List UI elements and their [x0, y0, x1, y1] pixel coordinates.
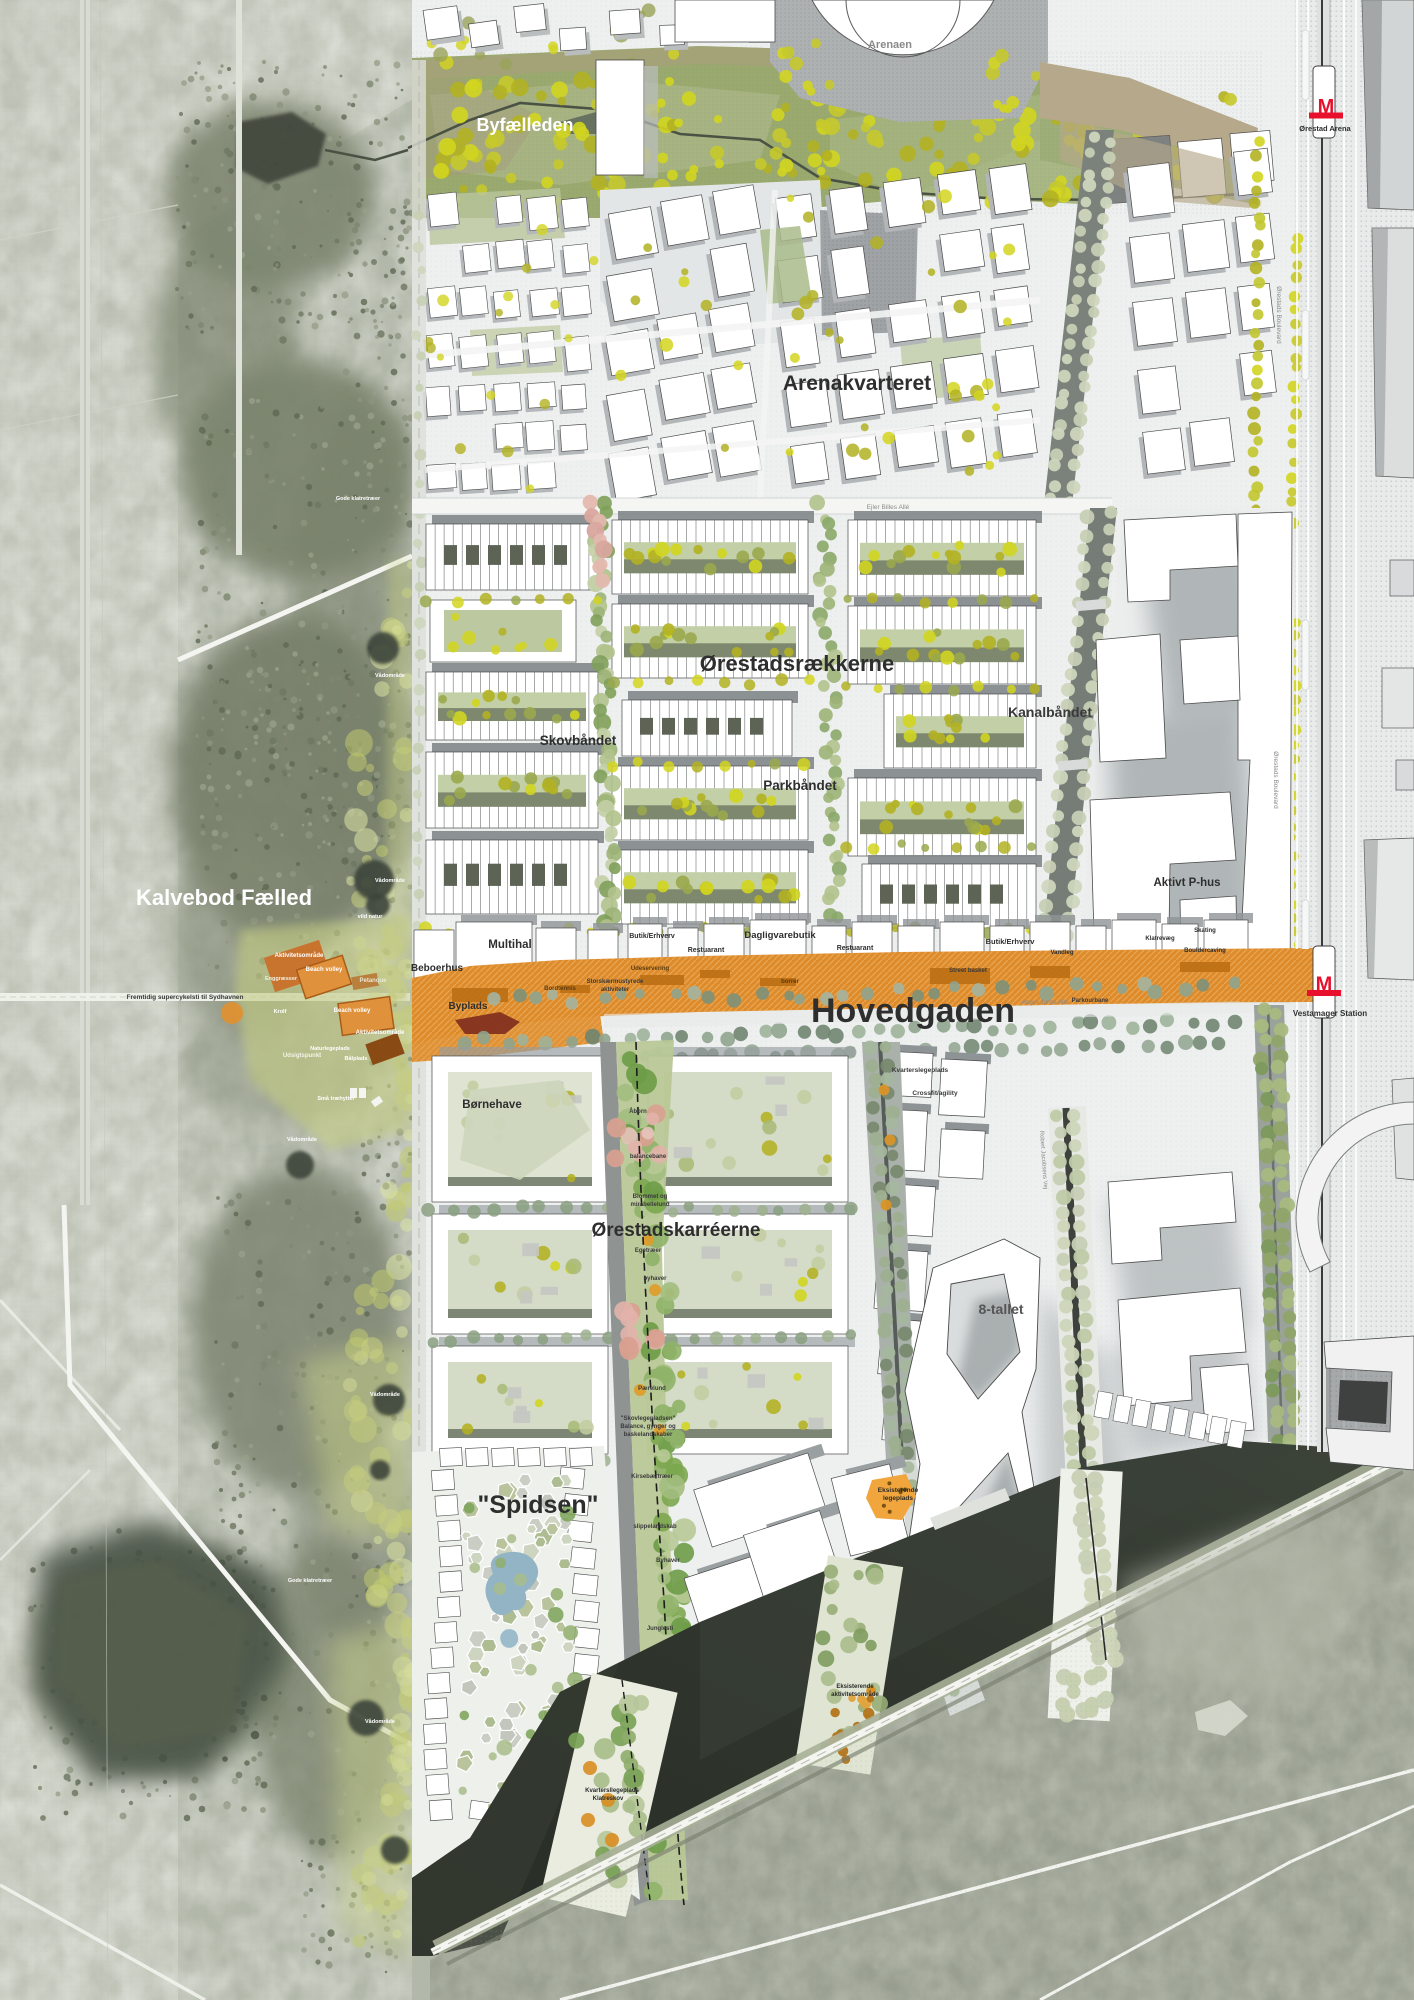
svg-text:Vestamager Station: Vestamager Station [1293, 1009, 1367, 1018]
svg-text:Beach volley: Beach volley [334, 1008, 371, 1014]
svg-text:Udeservering: Udeservering [631, 966, 670, 972]
svg-text:Vådområde: Vådområde [375, 877, 405, 884]
svg-text:Gode klatretræer: Gode klatretræer [336, 496, 381, 502]
svg-text:slippelandskab: slippelandskab [633, 1524, 677, 1530]
svg-text:Eksisterende: Eksisterende [836, 1684, 874, 1690]
svg-text:Asger Jorns Allé: Asger Jorns Allé [1022, 999, 1069, 1006]
svg-text:Kvartersllegeplads: Kvartersllegeplads [585, 1788, 639, 1794]
svg-text:byhaver: byhaver [643, 1276, 667, 1282]
svg-text:Byfælleden: Byfælleden [476, 115, 573, 135]
svg-text:Vådområde: Vådområde [370, 1391, 400, 1398]
svg-text:Crossfit/agility: Crossfit/agility [912, 1090, 958, 1097]
svg-text:Skovbåndet: Skovbåndet [540, 733, 617, 748]
svg-text:Beach volley: Beach volley [306, 967, 343, 973]
svg-text:Byplads: Byplads [449, 1001, 488, 1012]
svg-text:Vandleg: Vandleg [1050, 950, 1073, 956]
svg-text:Ejler Billes Allé: Ejler Billes Allé [867, 504, 910, 511]
svg-text:borrer: borrer [781, 979, 799, 985]
svg-text:Restuarant: Restuarant [837, 945, 874, 952]
svg-text:Gode klatretræer: Gode klatretræer [288, 1578, 333, 1584]
svg-text:vild natur: vild natur [358, 914, 384, 920]
svg-text:Ørestads Boulevard: Ørestads Boulevard [1275, 286, 1282, 344]
svg-text:Fremtidig supercykelsti til Sy: Fremtidig supercykelsti til Sydhavnen [126, 994, 243, 1001]
svg-text:"Spidsen": "Spidsen" [478, 1491, 599, 1519]
svg-text:Skating: Skating [1194, 928, 1216, 934]
svg-text:Vådområde: Vådområde [375, 672, 405, 679]
svg-text:balancebane: balancebane [630, 1154, 667, 1160]
svg-text:Aktivitetsområde: Aktivitetsområde [356, 1029, 405, 1036]
svg-text:Pærelund: Pærelund [638, 1386, 666, 1392]
svg-text:Balance, gynger og: Balance, gynger og [620, 1424, 676, 1430]
svg-text:Bålplads: Bålplads [345, 1055, 368, 1062]
svg-text:Ørestadskarréerne: Ørestadskarréerne [592, 1220, 761, 1241]
svg-text:Kirsebærtræer: Kirsebærtræer [631, 1474, 673, 1480]
svg-text:Dagligvarebutik: Dagligvarebutik [744, 930, 816, 941]
svg-text:Storskærmustyrede: Storskærmustyrede [587, 979, 644, 985]
svg-text:Ørestad Arena: Ørestad Arena [1299, 124, 1351, 133]
svg-text:Blommet og: Blommet og [633, 1194, 668, 1200]
svg-text:Børnehave: Børnehave [462, 1099, 521, 1111]
svg-text:Arenakvarteret: Arenakvarteret [783, 372, 931, 395]
svg-text:"Skovlegepladsen": "Skovlegepladsen" [621, 1416, 676, 1422]
svg-text:Klatrevæg: Klatrevæg [1145, 936, 1175, 942]
svg-text:mirabellelund: mirabellelund [630, 1202, 669, 1208]
svg-text:Enggræsser: Enggræsser [265, 976, 298, 982]
svg-text:Vådområde: Vådområde [287, 1136, 317, 1143]
svg-text:Bouldercaving: Bouldercaving [1184, 948, 1226, 954]
svg-text:Kalvebod Fælled: Kalvebod Fælled [136, 885, 312, 910]
svg-text:Aktivitetsområde: Aktivitetsområde [275, 952, 324, 959]
svg-text:baskelandskaber: baskelandskaber [624, 1432, 673, 1438]
svg-text:Multihal: Multihal [488, 939, 531, 951]
svg-text:Klatreskov: Klatreskov [593, 1796, 624, 1802]
svg-text:Butik/Erhverv: Butik/Erhverv [986, 937, 1036, 946]
svg-text:Arenaen: Arenaen [868, 39, 912, 51]
svg-text:Petanque: Petanque [359, 978, 387, 984]
svg-text:Vådområde: Vådområde [365, 1718, 395, 1725]
svg-text:aktivitetsområde: aktivitetsområde [831, 1691, 879, 1698]
svg-text:Junglesti: Junglesti [647, 1626, 674, 1632]
svg-text:Parkbåndet: Parkbåndet [763, 778, 837, 793]
svg-text:Åborn: Åborn [629, 1108, 647, 1115]
svg-text:M: M [1318, 96, 1335, 118]
svg-text:Bordtennis: Bordtennis [544, 986, 576, 992]
svg-text:Eksisterende: Eksisterende [878, 1487, 919, 1494]
svg-text:aktiviteter: aktiviteter [601, 987, 630, 993]
svg-text:legeplads: legeplads [883, 1495, 913, 1502]
svg-text:Aktivt P-hus: Aktivt P-hus [1153, 877, 1220, 889]
svg-text:Restuarant: Restuarant [688, 947, 725, 954]
svg-text:Krolf: Krolf [274, 1009, 287, 1015]
svg-text:Ørestadsrækkerne: Ørestadsrækkerne [700, 651, 894, 676]
svg-text:Ørestads Boulevard: Ørestads Boulevard [1272, 751, 1279, 809]
svg-text:Egetræer: Egetræer [635, 1248, 662, 1254]
svg-text:Udsigtspunkt: Udsigtspunkt [283, 1053, 321, 1059]
svg-text:Butik/Erhverv: Butik/Erhverv [629, 933, 675, 940]
svg-text:Byhaver: Byhaver [656, 1558, 680, 1564]
svg-text:Naturlegeplads: Naturlegeplads [310, 1046, 350, 1052]
svg-text:Kanalbåndet: Kanalbåndet [1008, 704, 1092, 720]
svg-text:8-tallet: 8-tallet [978, 1301, 1023, 1317]
svg-text:Parkourbane: Parkourbane [1072, 998, 1109, 1004]
svg-text:Kvarterslegeplads: Kvarterslegeplads [892, 1067, 949, 1074]
svg-text:Små træhytter: Små træhytter [317, 1095, 355, 1102]
svg-text:Street basket: Street basket [949, 968, 987, 974]
svg-text:Beboerhus: Beboerhus [411, 963, 464, 974]
svg-text:M: M [1316, 974, 1333, 996]
svg-text:Hovedgaden: Hovedgaden [811, 992, 1015, 1030]
